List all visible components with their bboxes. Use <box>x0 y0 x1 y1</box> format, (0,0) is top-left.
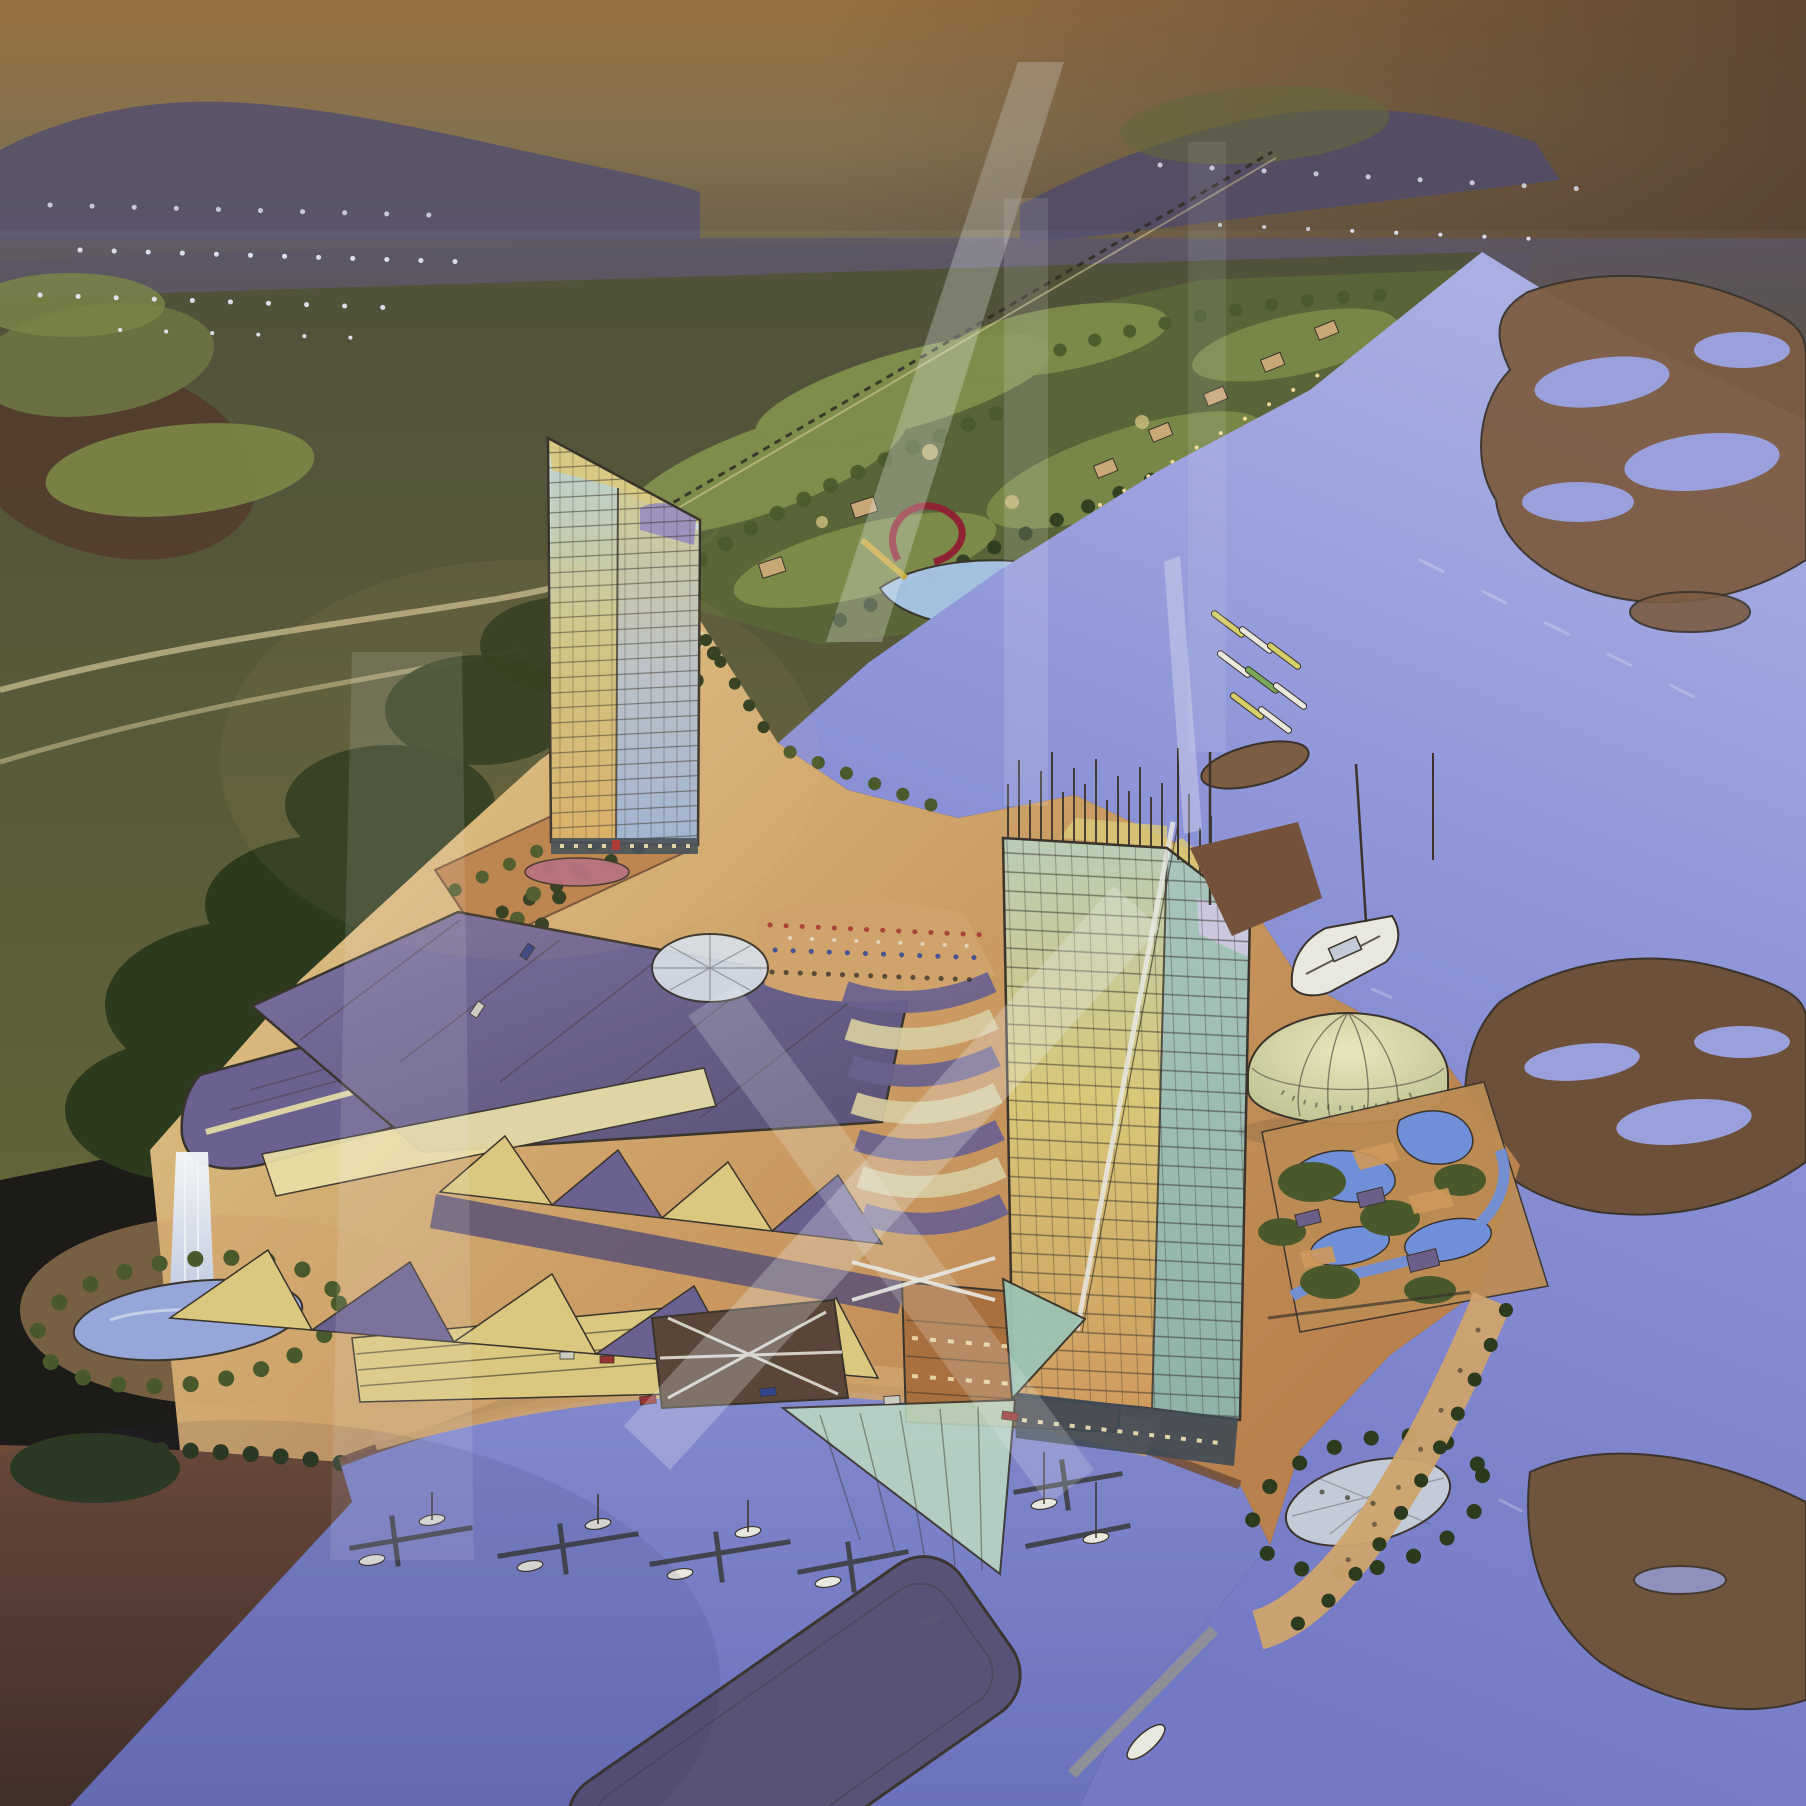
marsh-island-right <box>1465 959 1806 1215</box>
marsh-islet <box>1630 592 1750 632</box>
watercolor-rendering <box>0 0 1806 1806</box>
waterfall <box>170 1152 214 1292</box>
rendering-canvas <box>0 0 1806 1806</box>
warm-glow <box>220 560 820 960</box>
mud-pool <box>1634 1566 1726 1594</box>
top-dark-wash <box>0 0 1806 230</box>
beam-tower-column <box>1004 198 1048 806</box>
beam-tower-column-2 <box>1188 142 1226 752</box>
glass-pavilion <box>652 934 768 1002</box>
